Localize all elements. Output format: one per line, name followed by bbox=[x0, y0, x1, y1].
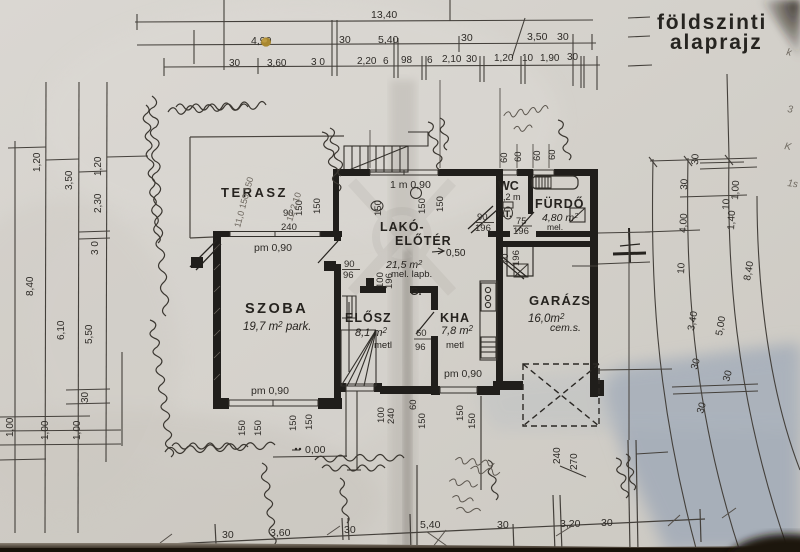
svg-text:3,50: 3,50 bbox=[64, 170, 75, 190]
svg-text:1,40: 1,40 bbox=[726, 210, 738, 230]
svg-text:1,00: 1,00 bbox=[730, 180, 742, 200]
svg-text:196: 196 bbox=[475, 223, 491, 234]
svg-text:G.: G. bbox=[410, 286, 422, 298]
svg-text:1,90: 1,90 bbox=[540, 53, 560, 64]
svg-text:5,40: 5,40 bbox=[420, 519, 441, 531]
svg-text:3,20: 3,20 bbox=[560, 518, 581, 530]
svg-text:10: 10 bbox=[676, 262, 688, 274]
svg-text:30: 30 bbox=[567, 52, 579, 63]
svg-text:1,20: 1,20 bbox=[93, 156, 104, 176]
svg-text:150: 150 bbox=[253, 420, 264, 436]
svg-text:2,20: 2,20 bbox=[357, 56, 377, 67]
svg-text:270: 270 bbox=[569, 453, 580, 470]
svg-text:F.T.: F.T. bbox=[497, 209, 512, 220]
svg-text:60: 60 bbox=[547, 149, 558, 160]
svg-text:ELŐTÉR: ELŐTÉR bbox=[395, 233, 452, 248]
svg-text:pm 0,90: pm 0,90 bbox=[444, 368, 482, 380]
svg-text:1,2 m: 1,2 m bbox=[498, 192, 521, 202]
svg-text:13,40: 13,40 bbox=[371, 9, 397, 21]
svg-text:pm 0,90: pm 0,90 bbox=[254, 242, 292, 254]
svg-text:mel.: mel. bbox=[547, 222, 563, 232]
svg-text:150: 150 bbox=[467, 413, 478, 429]
svg-text:alaprajz: alaprajz bbox=[670, 31, 763, 54]
svg-text:SZOBA: SZOBA bbox=[245, 301, 308, 317]
svg-text:3,50: 3,50 bbox=[527, 31, 548, 43]
svg-text:5,40: 5,40 bbox=[378, 34, 399, 46]
svg-text:0,50: 0,50 bbox=[446, 248, 466, 259]
svg-text:2,10: 2,10 bbox=[442, 54, 462, 65]
svg-text:6: 6 bbox=[383, 56, 389, 67]
svg-text:1,20: 1,20 bbox=[494, 53, 514, 64]
svg-text:pm 0,90: pm 0,90 bbox=[251, 385, 289, 397]
svg-text:60: 60 bbox=[408, 399, 419, 410]
svg-text:96: 96 bbox=[343, 270, 354, 281]
svg-text:90: 90 bbox=[477, 212, 488, 223]
svg-text:cem.s.: cem.s. bbox=[550, 322, 581, 334]
svg-text:150: 150 bbox=[455, 405, 466, 421]
svg-text:150: 150 bbox=[373, 200, 384, 216]
svg-text:30: 30 bbox=[229, 58, 241, 69]
svg-text:150: 150 bbox=[304, 414, 315, 430]
svg-text:10: 10 bbox=[721, 198, 733, 210]
svg-text:3 0: 3 0 bbox=[90, 241, 101, 255]
svg-text:60: 60 bbox=[499, 152, 510, 163]
svg-text:150: 150 bbox=[237, 420, 248, 436]
svg-text:4,00: 4,00 bbox=[678, 213, 690, 233]
svg-text:60: 60 bbox=[416, 328, 427, 339]
svg-text:30: 30 bbox=[339, 34, 351, 46]
svg-text:1 m 0,90: 1 m 0,90 bbox=[390, 179, 431, 191]
svg-text:90: 90 bbox=[344, 259, 355, 270]
svg-text:1,00: 1,00 bbox=[72, 420, 83, 440]
svg-text:19,7 m2 park.: 19,7 m2 park. bbox=[243, 320, 311, 333]
svg-text:6,10: 6,10 bbox=[56, 320, 67, 340]
svg-text:150: 150 bbox=[312, 198, 323, 214]
svg-text:150: 150 bbox=[417, 198, 428, 214]
svg-text:1,00: 1,00 bbox=[40, 420, 51, 440]
svg-text:WC: WC bbox=[498, 179, 519, 193]
svg-text:240: 240 bbox=[552, 447, 563, 464]
svg-text:30: 30 bbox=[461, 32, 473, 44]
svg-text:60: 60 bbox=[513, 151, 524, 162]
svg-text:240: 240 bbox=[281, 222, 297, 233]
svg-text:150: 150 bbox=[435, 196, 446, 212]
svg-text:150: 150 bbox=[417, 413, 428, 429]
svg-text:196: 196 bbox=[511, 250, 522, 266]
svg-text:8,40: 8,40 bbox=[25, 276, 36, 296]
svg-text:0,00: 0,00 bbox=[305, 444, 326, 456]
svg-text:KHA: KHA bbox=[440, 311, 470, 325]
svg-text:30: 30 bbox=[497, 519, 509, 531]
svg-text:ELŐSZ: ELŐSZ bbox=[345, 310, 392, 325]
svg-text:2,30: 2,30 bbox=[93, 193, 104, 213]
svg-text:60: 60 bbox=[532, 150, 543, 161]
svg-text:1,20: 1,20 bbox=[32, 152, 43, 172]
svg-text:150: 150 bbox=[288, 415, 299, 431]
svg-text:98: 98 bbox=[401, 55, 413, 66]
svg-text:240: 240 bbox=[386, 408, 397, 424]
svg-text:30: 30 bbox=[601, 517, 613, 529]
svg-text:196: 196 bbox=[384, 273, 395, 289]
svg-text:3,60: 3,60 bbox=[267, 58, 287, 69]
svg-text:GARÁZS: GARÁZS bbox=[529, 293, 591, 308]
svg-text:30: 30 bbox=[222, 529, 234, 541]
svg-text:3 0: 3 0 bbox=[311, 57, 325, 68]
svg-text:metl: metl bbox=[374, 340, 392, 351]
svg-text:1s: 1s bbox=[787, 178, 799, 190]
svg-text:30: 30 bbox=[80, 391, 91, 403]
svg-text:196: 196 bbox=[513, 226, 529, 237]
svg-text:30: 30 bbox=[466, 54, 478, 65]
svg-text:10: 10 bbox=[522, 53, 534, 64]
svg-text:6: 6 bbox=[427, 55, 433, 66]
svg-text:1,00: 1,00 bbox=[5, 417, 16, 437]
svg-text:LAKÓ-: LAKÓ- bbox=[380, 219, 425, 234]
svg-text:70: 70 bbox=[500, 253, 511, 264]
svg-text:30: 30 bbox=[557, 31, 569, 43]
svg-text:5,50: 5,50 bbox=[84, 324, 95, 344]
svg-text:metl: metl bbox=[446, 340, 464, 351]
svg-text:30: 30 bbox=[690, 153, 702, 165]
svg-text:mel. lapb.: mel. lapb. bbox=[391, 269, 432, 280]
svg-text:96: 96 bbox=[415, 342, 426, 353]
svg-text:TERASZ: TERASZ bbox=[221, 185, 288, 200]
svg-text:30: 30 bbox=[344, 524, 356, 536]
svg-text:FÜRDŐ: FÜRDŐ bbox=[535, 196, 584, 211]
svg-text:30: 30 bbox=[679, 178, 691, 190]
